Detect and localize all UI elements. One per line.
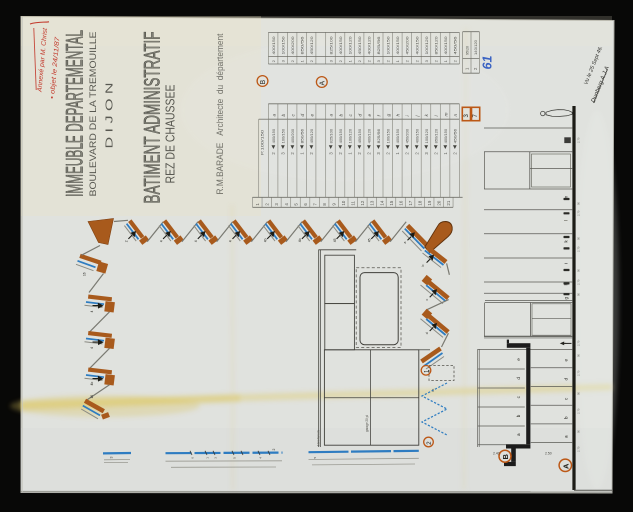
svg-text:450/56: 450/56 [453,37,457,55]
svg-text:19: 19 [427,200,432,205]
svg-text:100/150: 100/150 [387,129,391,144]
svg-text:g: g [387,114,392,117]
svg-text:400/150: 400/150 [339,129,343,144]
svg-text:850/120: 850/120 [434,129,438,144]
svg-text:17: 17 [408,200,413,205]
svg-text:100/120: 100/120 [348,37,352,55]
svg-text:400/150: 400/150 [415,129,419,144]
svg-text:400/150: 400/150 [444,129,448,144]
svg-text:16: 16 [83,272,87,276]
svg-text:450/200: 450/200 [406,37,410,55]
svg-text:h: h [396,114,402,117]
svg-text:400/200: 400/200 [291,129,295,144]
svg-text:2.70: 2.70 [577,340,581,346]
svg-text:4b: 4b [263,238,267,242]
svg-text:4b: 4b [90,382,94,386]
svg-text:16: 16 [398,200,403,205]
svg-text:850/56: 850/56 [301,37,305,55]
svg-text:825/100: 825/100 [329,37,333,55]
svg-text:g: g [564,297,569,300]
svg-text:d: d [516,377,521,380]
svg-text:B.de la Tremouille: B.de la Tremouille [317,430,321,446]
svg-text:61: 61 [481,56,495,70]
svg-text:2: 2 [125,240,129,242]
svg-text:20: 20 [437,200,442,205]
svg-text:100/150: 100/150 [387,37,391,55]
svg-text:90: 90 [577,236,581,240]
svg-text:95/20: 95/20 [466,46,470,55]
svg-text:400/150: 400/150 [444,37,448,55]
svg-text:BATIMENT ADMINISTRATIF: BATIMENT ADMINISTRATIF [140,32,165,204]
svg-text:B: B [260,80,267,85]
svg-text:90: 90 [577,201,581,205]
svg-text:2.70: 2.70 [577,210,581,216]
svg-text:850/120: 850/120 [434,37,438,55]
svg-text:4: 4 [229,240,233,242]
svg-text:12: 12 [360,200,365,205]
svg-text:11: 11 [351,200,356,205]
svg-text:100/120: 100/120 [425,129,429,144]
svg-text:400/150: 400/150 [339,37,343,55]
svg-text:d: d [564,378,569,381]
svg-text:2.70: 2.70 [577,137,581,143]
svg-text:90: 90 [577,292,581,296]
svg-text:3: 3 [110,457,114,459]
svg-text:450/150: 450/150 [358,37,362,55]
svg-text:IMMEUBLE DEPARTEMENTAL: IMMEUBLE DEPARTEMENTAL [62,30,89,197]
svg-text:P.100/150: P.100/150 [260,130,264,155]
svg-text:15: 15 [389,200,394,205]
svg-text:e: e [368,114,373,117]
svg-text:400/150: 400/150 [272,129,276,144]
svg-text:90: 90 [577,429,581,433]
svg-text:850/56: 850/56 [301,129,305,144]
svg-text:B: B [501,454,510,460]
svg-text:d: d [300,114,306,117]
svg-text:140/120: 140/120 [474,40,478,55]
svg-text:a: a [272,114,277,117]
svg-text:4: 4 [90,311,94,313]
svg-text:4: 4 [159,240,163,242]
svg-text:l: l [564,220,569,221]
svg-text:b: b [564,416,569,419]
svg-text:a: a [330,114,335,117]
svg-text:825/56: 825/56 [377,37,381,55]
svg-text:400/120: 400/120 [368,129,372,144]
svg-text:100/120: 100/120 [425,37,429,55]
svg-text:400/150: 400/150 [396,129,400,144]
svg-text:d: d [357,114,363,117]
svg-text:450/56: 450/56 [453,129,457,144]
svg-text:b: b [516,414,521,417]
svg-text:d: d [425,332,429,334]
svg-text:2.70: 2.70 [577,279,581,285]
svg-text:825/100: 825/100 [329,129,333,144]
svg-text:90: 90 [577,353,581,357]
svg-text:450/120: 450/120 [310,37,314,55]
svg-text:n: n [454,114,459,117]
svg-text:A: A [319,81,326,86]
svg-text:e: e [516,358,521,361]
svg-text:b: b [338,114,344,117]
svg-text:i: i [564,263,569,264]
svg-text:a: a [403,242,407,244]
svg-text:2.40: 2.40 [493,452,500,456]
svg-text:e: e [310,114,315,117]
svg-text:400/200: 400/200 [291,37,295,55]
svg-text:REZ DE CHAUSSEE: REZ DE CHAUSSEE [163,84,178,183]
svg-text:400/150: 400/150 [415,37,419,55]
svg-text:2.50: 2.50 [545,452,552,456]
svg-text:45: 45 [333,238,337,242]
svg-text:90: 90 [577,268,581,272]
svg-text:450/120: 450/120 [310,129,314,144]
svg-text:16: 16 [431,388,435,392]
svg-text:10: 10 [341,200,346,205]
svg-text:R.M.BARADE Architecte du d: R.M.BARADE Architecte du département [215,33,225,194]
svg-text:100/120: 100/120 [348,129,352,144]
svg-text:b: b [421,265,425,267]
svg-text:450/150: 450/150 [358,129,362,144]
svg-text:13: 13 [370,200,375,205]
svg-text:b: b [281,114,287,117]
svg-text:2.70: 2.70 [577,370,581,376]
svg-text:400/150: 400/150 [272,37,276,55]
svg-text:BOULEVARD DE LA TREMOUILLE: BOULEVARD DE LA TREMOUILLE [88,32,99,197]
svg-text:450/200: 450/200 [406,129,410,144]
svg-text:4b: 4b [298,238,302,242]
svg-text:c: c [425,299,429,301]
svg-text:100/150: 100/150 [282,37,286,55]
svg-text:16: 16 [90,395,94,399]
svg-text:2.70: 2.70 [577,246,581,252]
svg-text:45: 45 [368,238,372,242]
svg-text:400/120: 400/120 [368,37,372,55]
svg-text:100/150: 100/150 [282,129,286,144]
svg-text:825/56: 825/56 [377,129,381,144]
svg-text:A: A [561,463,570,469]
svg-text:a: a [564,435,569,438]
svg-text:14: 14 [379,200,384,205]
svg-text:400/150: 400/150 [396,37,400,55]
svg-text:4: 4 [90,347,94,349]
svg-text:90: 90 [577,391,581,395]
svg-text:garage 20 pl: garage 20 pl [364,415,369,432]
svg-text:21: 21 [446,200,451,205]
svg-text:18: 18 [417,200,422,205]
svg-text:4: 4 [194,240,198,242]
svg-text:2.70: 2.70 [577,446,581,452]
svg-text:e: e [564,359,569,362]
svg-text:2.70: 2.70 [577,408,581,414]
svg-text:D I J O N: D I J O N [105,83,116,149]
svg-text:2: 2 [272,449,276,451]
svg-text:m: m [444,113,449,117]
svg-text:a: a [516,433,521,436]
